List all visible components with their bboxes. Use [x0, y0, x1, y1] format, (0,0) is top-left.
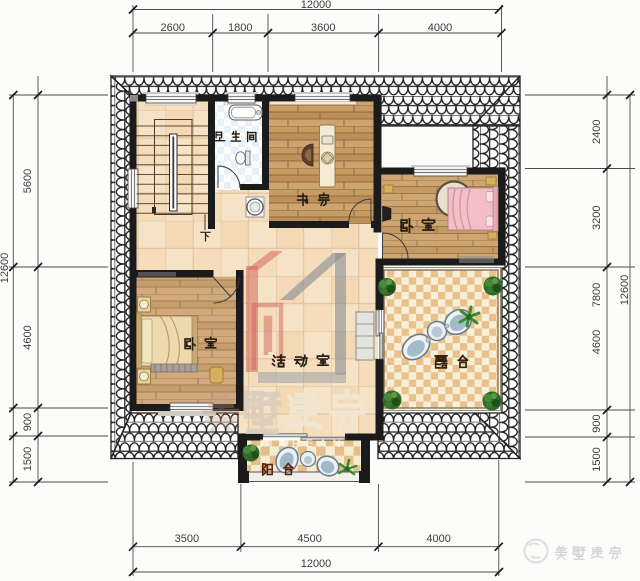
svg-text:4000: 4000 [428, 22, 452, 34]
svg-text:4000: 4000 [426, 533, 450, 545]
svg-text:7800: 7800 [591, 283, 603, 307]
svg-text:5600: 5600 [22, 169, 34, 193]
svg-text:12000: 12000 [301, 0, 332, 11]
svg-text:1800: 1800 [228, 22, 252, 34]
svg-text:900: 900 [591, 414, 603, 432]
svg-text:JIAREAN: JIAREAN [258, 438, 346, 450]
svg-text:12000: 12000 [301, 558, 332, 570]
svg-text:3600: 3600 [311, 22, 335, 34]
svg-text:12600: 12600 [0, 253, 11, 284]
svg-text:12600: 12600 [619, 275, 631, 306]
svg-text:1500: 1500 [22, 447, 34, 471]
svg-text:4500: 4500 [297, 533, 321, 545]
svg-text:2400: 2400 [591, 119, 603, 143]
svg-text:3500: 3500 [175, 533, 199, 545]
svg-text:1500: 1500 [591, 447, 603, 471]
svg-text:3200: 3200 [591, 205, 603, 229]
svg-text:900: 900 [22, 413, 34, 431]
svg-text:2600: 2600 [161, 22, 185, 34]
svg-text:4600: 4600 [591, 330, 603, 354]
svg-text:4600: 4600 [22, 325, 34, 349]
